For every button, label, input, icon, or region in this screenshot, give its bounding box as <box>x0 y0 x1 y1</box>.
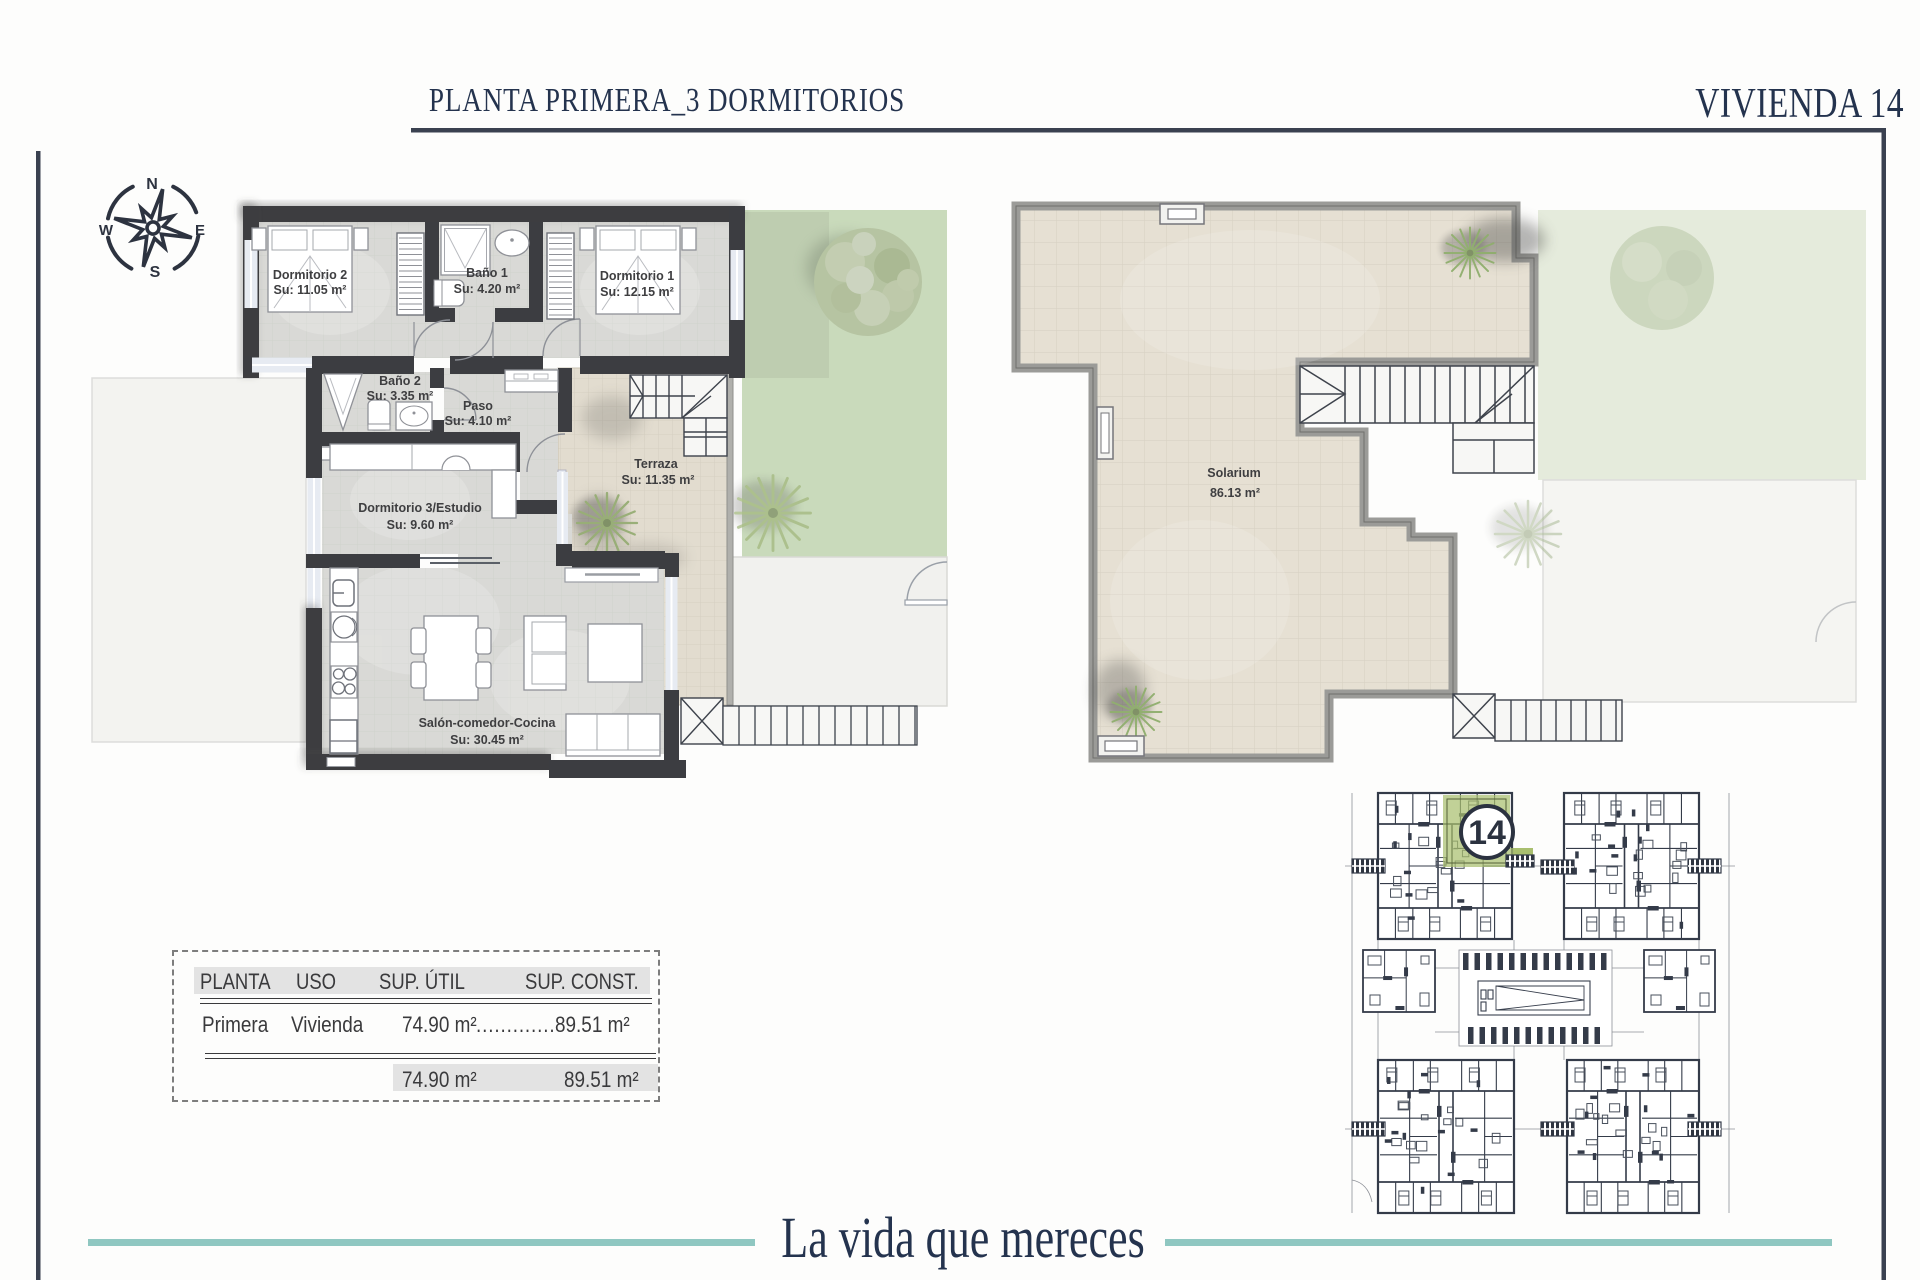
svg-text:Su: 12.15 m²: Su: 12.15 m² <box>600 285 674 299</box>
svg-text:E: E <box>195 222 205 239</box>
svg-text:Dormitorio 1: Dormitorio 1 <box>600 269 674 283</box>
svg-text:Su: 30.45 m²: Su: 30.45 m² <box>450 733 524 747</box>
svg-text:Paso: Paso <box>463 399 493 413</box>
svg-text:14: 14 <box>1468 814 1506 852</box>
svg-text:W: W <box>99 222 114 239</box>
svg-text:Baño 1: Baño 1 <box>466 266 508 280</box>
svg-text:Dormitorio 2: Dormitorio 2 <box>273 268 347 282</box>
svg-text:Solarium: Solarium <box>1207 466 1261 480</box>
svg-text:Su: 4.10 m²: Su: 4.10 m² <box>445 414 512 428</box>
svg-text:Su: 11.35 m²: Su: 11.35 m² <box>622 473 695 487</box>
svg-text:Terraza: Terraza <box>634 457 679 471</box>
svg-text:Su: 9.60 m²: Su: 9.60 m² <box>387 518 454 532</box>
svg-text:Su: 3.35 m²: Su: 3.35 m² <box>367 389 434 403</box>
svg-text:Salón-comedor-Cocina: Salón-comedor-Cocina <box>419 716 557 730</box>
svg-text:N: N <box>146 176 158 193</box>
svg-text:86.13 m²: 86.13 m² <box>1210 486 1260 500</box>
svg-text:Dormitorio 3/Estudio: Dormitorio 3/Estudio <box>358 501 482 515</box>
svg-text:Su: 4.20 m²: Su: 4.20 m² <box>454 282 521 296</box>
svg-text:Baño 2: Baño 2 <box>379 374 421 388</box>
svg-text:Su: 11.05 m²: Su: 11.05 m² <box>274 283 347 297</box>
svg-text:S: S <box>150 264 161 281</box>
